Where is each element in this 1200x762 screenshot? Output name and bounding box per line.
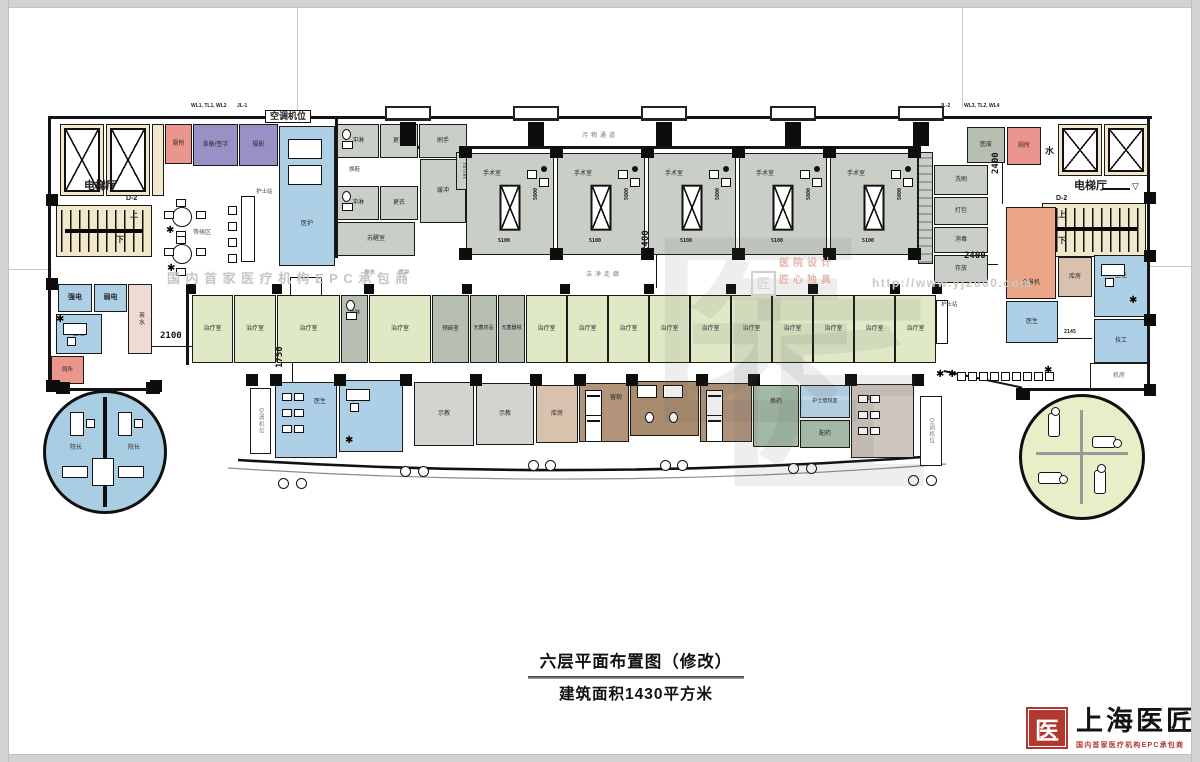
furniture-box bbox=[92, 458, 114, 486]
dental-chair-icon bbox=[1048, 413, 1060, 437]
plan-label: 等候区 bbox=[193, 230, 211, 236]
table-icon bbox=[288, 165, 322, 185]
room: 预麻室 bbox=[432, 295, 469, 363]
dimension-label: 5800 bbox=[716, 188, 721, 200]
room: 厕所 bbox=[1007, 127, 1041, 165]
chair-icon bbox=[164, 248, 174, 256]
furniture-box bbox=[1023, 372, 1032, 381]
operating-table-icon bbox=[773, 185, 794, 231]
column bbox=[1144, 384, 1156, 396]
column bbox=[56, 382, 70, 394]
wall bbox=[150, 346, 192, 347]
plan-label: 院长 bbox=[128, 445, 140, 451]
furniture-box bbox=[228, 238, 237, 247]
plant-icon: ✱ bbox=[1129, 296, 1137, 306]
furniture-box bbox=[1012, 372, 1021, 381]
room-label: 示教 bbox=[415, 383, 473, 445]
room-label: 治疗室 bbox=[609, 296, 648, 362]
furniture-box bbox=[957, 372, 966, 381]
room-label: 治疗室 bbox=[568, 296, 607, 362]
dental-chair-icon bbox=[1094, 470, 1106, 494]
chair-icon bbox=[294, 425, 304, 433]
column bbox=[785, 122, 801, 146]
chair-icon bbox=[294, 409, 304, 417]
chair-icon bbox=[196, 248, 206, 256]
room: 无菌药品 bbox=[470, 295, 497, 363]
toilet-icon bbox=[645, 412, 654, 423]
equipment-icon bbox=[618, 170, 628, 179]
room-label: 摄影 bbox=[240, 125, 277, 165]
room-label: 手术室 bbox=[631, 124, 717, 224]
toilet-icon bbox=[342, 191, 351, 202]
plan-label: 更衣 bbox=[364, 271, 375, 277]
dimension-label: 5800 bbox=[898, 188, 903, 200]
equipment-icon bbox=[903, 178, 913, 187]
room: 冲淋 bbox=[341, 295, 368, 363]
balcony-column bbox=[278, 478, 289, 489]
column bbox=[574, 374, 586, 386]
dimension-label: 2100 bbox=[160, 332, 182, 341]
room bbox=[1058, 124, 1102, 176]
building-area-label: 建筑面积1430平方米 bbox=[520, 682, 752, 704]
operating-table-icon bbox=[500, 185, 521, 231]
circle-room bbox=[43, 390, 167, 514]
room: 无菌器械 bbox=[498, 295, 525, 363]
column bbox=[400, 122, 416, 146]
column bbox=[1144, 314, 1156, 326]
room: 治疗室 bbox=[608, 295, 649, 363]
room-label: 医生 bbox=[1007, 302, 1057, 342]
column bbox=[462, 284, 472, 294]
equipment-icon bbox=[709, 170, 719, 179]
column bbox=[626, 374, 638, 386]
guide-line bbox=[297, 8, 298, 118]
canopy bbox=[385, 106, 431, 121]
column bbox=[641, 146, 654, 158]
canopy bbox=[770, 106, 816, 121]
dimension-label: 2145 bbox=[1064, 330, 1076, 335]
room-label: 示教 bbox=[477, 384, 533, 444]
furniture-box bbox=[118, 466, 144, 478]
column bbox=[908, 248, 921, 260]
room-label: 无菌器械 bbox=[499, 296, 524, 362]
title-block: 六层平面布置图（修改） 建筑面积1430平方米 bbox=[520, 648, 752, 704]
room-label: 主任 bbox=[1095, 246, 1147, 306]
toilet-icon bbox=[342, 129, 351, 140]
plant-icon: ✱ bbox=[345, 436, 353, 446]
wall bbox=[48, 116, 51, 391]
chair-icon bbox=[858, 395, 868, 403]
column bbox=[823, 248, 836, 260]
desk-icon bbox=[70, 412, 84, 436]
room: 冲淋 bbox=[337, 186, 379, 220]
plan-label: WL3, TL2, WL4 bbox=[964, 104, 1000, 109]
room-label: 厕所 bbox=[166, 125, 191, 163]
page-margin-right bbox=[1191, 0, 1200, 762]
room-label: 空调机位 bbox=[251, 389, 270, 453]
room-label: 洗刷 bbox=[935, 166, 987, 194]
desk-icon bbox=[1101, 264, 1125, 276]
operating-table-icon bbox=[864, 185, 885, 231]
room: 示教 bbox=[476, 383, 534, 445]
elevator-icon bbox=[1108, 128, 1144, 172]
plan-label: JL-2 bbox=[940, 104, 950, 109]
room-label: 治疗室 bbox=[650, 296, 689, 362]
chair-icon bbox=[282, 393, 292, 401]
column bbox=[912, 374, 924, 386]
chair-icon bbox=[164, 211, 174, 219]
chair-icon bbox=[176, 236, 186, 244]
column bbox=[334, 374, 346, 386]
room bbox=[1104, 124, 1148, 176]
plan-label: 下 bbox=[116, 236, 124, 244]
room: 治疗室 bbox=[567, 295, 608, 363]
page-margin-bottom bbox=[0, 754, 1200, 762]
balcony-column bbox=[926, 475, 937, 486]
room: 技工 bbox=[1094, 319, 1148, 363]
title-divider bbox=[528, 676, 744, 679]
canopy bbox=[513, 106, 559, 121]
desk-icon bbox=[118, 412, 132, 436]
room: 洗刷 bbox=[934, 165, 988, 195]
partition bbox=[1036, 452, 1128, 455]
plan-label: 护士站 bbox=[941, 303, 958, 309]
logo-text: 上海医匠 国内首家医疗机构EPC承包商 bbox=[1076, 707, 1196, 750]
room: 库房 bbox=[1058, 257, 1092, 297]
chair-icon bbox=[176, 268, 186, 276]
partition bbox=[1080, 410, 1083, 504]
drawing-title: 六层平面布置图（修改） bbox=[520, 648, 752, 672]
column bbox=[550, 248, 563, 260]
plant-icon: ✱ bbox=[948, 370, 956, 380]
room-label: 消毒 bbox=[935, 228, 987, 252]
room: 摄影 bbox=[239, 124, 278, 166]
chair-icon bbox=[870, 411, 880, 419]
room-label: 预麻室 bbox=[433, 296, 468, 362]
column bbox=[890, 284, 900, 294]
column bbox=[46, 278, 58, 290]
wall bbox=[48, 116, 1152, 119]
room-label: 手术室 bbox=[449, 124, 535, 224]
furniture-box bbox=[968, 372, 977, 381]
room-label: 强电 bbox=[59, 285, 91, 311]
room: 医护 bbox=[279, 126, 335, 266]
plan-label: D-2 bbox=[1056, 195, 1067, 202]
room: 更衣 bbox=[380, 186, 418, 220]
desk-chair-icon bbox=[350, 403, 359, 412]
plan-label: ▽ bbox=[1132, 182, 1139, 191]
room: 厕所 bbox=[165, 124, 192, 164]
column bbox=[550, 146, 563, 158]
balcony-column bbox=[908, 475, 919, 486]
plan-label: 缓冲 bbox=[398, 271, 409, 277]
floor-plan-canvas: 厕所准备/签字摄影医护冲淋更衣刷手冲淋更衣缓冲toilet苏醒室手术室手术室手术… bbox=[0, 0, 1200, 762]
dimension-label: 2400 bbox=[642, 230, 651, 252]
room-label: 弱电 bbox=[95, 285, 126, 311]
page-margin-top bbox=[0, 0, 1200, 8]
column bbox=[470, 374, 482, 386]
page-margin-left bbox=[0, 0, 9, 762]
dimension-label: 1750 bbox=[276, 346, 285, 368]
column bbox=[1144, 250, 1156, 262]
room-label: 治疗室 bbox=[732, 296, 771, 362]
column bbox=[823, 146, 836, 158]
column bbox=[696, 374, 708, 386]
room: 医生 bbox=[275, 382, 337, 458]
toilet-icon bbox=[669, 412, 678, 423]
bed-icon bbox=[706, 415, 723, 442]
sink-icon bbox=[346, 312, 357, 320]
balcony-arc-edge bbox=[228, 464, 946, 479]
dimension-label: 5800 bbox=[625, 188, 630, 200]
column bbox=[732, 146, 745, 158]
room-label: 库房 bbox=[1059, 258, 1091, 296]
room-label: 治疗室 bbox=[193, 296, 232, 362]
round-table-icon bbox=[172, 244, 192, 264]
plan-label: 空调机位 bbox=[265, 110, 311, 123]
room: 治疗室 bbox=[192, 295, 233, 363]
plan-label: 污物通道 bbox=[582, 133, 618, 139]
furniture-box bbox=[979, 372, 988, 381]
room: 强电 bbox=[58, 284, 92, 312]
sink-icon bbox=[342, 141, 353, 149]
chair-icon bbox=[858, 427, 868, 435]
column bbox=[46, 194, 58, 206]
room-label: 治疗室 bbox=[527, 296, 566, 362]
room: 治疗室 bbox=[854, 295, 895, 363]
dimension-label: 5100 bbox=[498, 239, 510, 244]
furniture-box bbox=[241, 196, 255, 262]
chair-icon bbox=[282, 409, 292, 417]
sink-icon bbox=[342, 203, 353, 211]
column bbox=[644, 284, 654, 294]
chair-icon bbox=[294, 393, 304, 401]
desk-chair-icon bbox=[67, 337, 76, 346]
room: 留观 bbox=[579, 383, 629, 442]
chair-icon bbox=[870, 395, 880, 403]
room: 治疗室 bbox=[772, 295, 813, 363]
room: 输液 bbox=[851, 384, 914, 458]
room-label: 茶水 bbox=[129, 285, 151, 353]
plan-label: 院长 bbox=[70, 445, 82, 451]
room-label: 治疗室 bbox=[896, 296, 935, 362]
column bbox=[560, 284, 570, 294]
balcony-column bbox=[806, 463, 817, 474]
balcony-column bbox=[296, 478, 307, 489]
dimension-label: 5100 bbox=[862, 239, 874, 244]
room: 治疗室 bbox=[277, 295, 340, 363]
cabinet-icon bbox=[663, 385, 683, 398]
column bbox=[726, 284, 736, 294]
balcony-column bbox=[545, 460, 556, 471]
room-label: 空调机位 bbox=[921, 397, 941, 465]
dimension-label: 2400 bbox=[964, 252, 986, 261]
dimension-label: 5100 bbox=[589, 239, 601, 244]
column bbox=[932, 284, 942, 294]
room: 主任 bbox=[1094, 255, 1148, 317]
column bbox=[1016, 388, 1030, 400]
logo-company-name: 上海医匠 bbox=[1076, 707, 1196, 737]
furniture-box bbox=[1001, 372, 1010, 381]
desk-chair-icon bbox=[134, 419, 143, 428]
column bbox=[272, 284, 282, 294]
room: 治疗室 bbox=[649, 295, 690, 363]
dimension-label: 5800 bbox=[807, 188, 812, 200]
room-label: 治疗室 bbox=[235, 296, 275, 362]
column bbox=[1144, 192, 1156, 204]
guide-line bbox=[1150, 266, 1192, 267]
plan-label: D-2 bbox=[126, 195, 137, 202]
room: 冲淋 bbox=[337, 124, 379, 158]
room: 弱电 bbox=[94, 284, 127, 312]
chair-icon bbox=[176, 199, 186, 207]
room: 治疗室 bbox=[731, 295, 772, 363]
plan-label: WL1, TL1, WL2 bbox=[191, 104, 227, 109]
room-label: 库房 bbox=[537, 386, 577, 442]
dental-chair-icon bbox=[1038, 472, 1062, 484]
equipment-icon bbox=[891, 170, 901, 179]
room-label: 换药 bbox=[754, 372, 798, 432]
equipment-icon bbox=[527, 170, 537, 179]
plan-label: 电梯厅 bbox=[84, 181, 117, 192]
elevator-icon bbox=[1062, 128, 1098, 172]
balcony-column bbox=[788, 463, 799, 474]
room: 换药 bbox=[753, 385, 799, 447]
column bbox=[913, 122, 929, 146]
desk-chair-icon bbox=[86, 419, 95, 428]
column bbox=[908, 146, 921, 158]
room-label: 准备/签字 bbox=[194, 125, 237, 165]
chair-icon bbox=[196, 211, 206, 219]
dimension-label: 5100 bbox=[680, 239, 692, 244]
room: 机房 bbox=[1090, 363, 1148, 389]
furniture-box bbox=[228, 254, 237, 263]
guide-line bbox=[962, 8, 963, 108]
plant-icon: ✱ bbox=[166, 226, 174, 236]
furniture-box bbox=[62, 466, 88, 478]
plan-label: 上 bbox=[130, 211, 138, 219]
room-label: 更衣 bbox=[381, 187, 417, 219]
bed-icon bbox=[585, 390, 602, 417]
column bbox=[400, 374, 412, 386]
plan-label: 下 bbox=[1058, 237, 1066, 245]
plan-label: 换鞋 bbox=[349, 168, 360, 174]
stairs-rail-icon bbox=[65, 229, 144, 233]
column bbox=[146, 382, 160, 394]
plan-label: 上 bbox=[1058, 211, 1066, 219]
pod-divider-wall bbox=[103, 397, 107, 508]
company-logo: 医 上海医匠 国内首家医疗机构EPC承包商 bbox=[1026, 707, 1196, 750]
balcony-column bbox=[677, 460, 688, 471]
room-label: 机房 bbox=[1091, 364, 1147, 388]
balcony-column bbox=[400, 466, 411, 477]
dimension-label: 5100 bbox=[771, 239, 783, 244]
room-label: 治疗室 bbox=[691, 296, 730, 362]
room: 准备/签字 bbox=[193, 124, 238, 166]
room-label: 治疗室 bbox=[773, 296, 812, 362]
furniture-box bbox=[228, 222, 237, 231]
guide-line bbox=[8, 269, 52, 270]
stairs-rail-icon bbox=[1051, 227, 1137, 231]
balcony-column bbox=[660, 460, 671, 471]
round-table-icon bbox=[172, 207, 192, 227]
room-label: 治疗室 bbox=[855, 296, 894, 362]
room-label: 治疗室 bbox=[370, 296, 430, 362]
plan-label: 护士站 bbox=[256, 190, 273, 196]
logo-tagline: 国内首家医疗机构EPC承包商 bbox=[1076, 740, 1196, 750]
room: 消毒 bbox=[934, 227, 988, 253]
equipment-dot-icon bbox=[905, 166, 911, 172]
chair-icon bbox=[282, 425, 292, 433]
room: 留观 bbox=[700, 383, 752, 442]
column bbox=[732, 248, 745, 260]
desk-chair-icon bbox=[1105, 278, 1114, 287]
room: 治疗室 bbox=[369, 295, 431, 363]
column bbox=[528, 122, 544, 146]
column bbox=[186, 284, 196, 294]
room: 茶水 bbox=[128, 284, 152, 354]
room: 治疗室 bbox=[234, 295, 276, 363]
logo-seal-icon: 医 bbox=[1026, 707, 1068, 749]
balcony-column bbox=[528, 460, 539, 471]
column bbox=[845, 374, 857, 386]
toilet-icon bbox=[346, 300, 355, 311]
column bbox=[270, 374, 282, 386]
furniture-box bbox=[1034, 372, 1043, 381]
column bbox=[459, 248, 472, 260]
chair-icon bbox=[870, 427, 880, 435]
wall bbox=[186, 291, 189, 365]
room bbox=[152, 124, 164, 196]
wall bbox=[1056, 338, 1092, 339]
room-label: 苏醒室 bbox=[338, 223, 414, 255]
table-icon bbox=[288, 139, 322, 159]
room-label: 手术室 bbox=[813, 124, 899, 224]
canopy bbox=[898, 106, 944, 121]
dimension-label: 2400 bbox=[992, 152, 1001, 174]
room-label: 治疗室 bbox=[814, 296, 853, 362]
plan-label: 水 bbox=[1045, 147, 1054, 156]
plant-icon: ✱ bbox=[167, 264, 175, 274]
room-label: 打包 bbox=[935, 198, 987, 224]
room-label: 技工 bbox=[1095, 320, 1147, 362]
plant-icon: ✱ bbox=[56, 315, 64, 325]
room: 全景机 bbox=[1006, 207, 1056, 299]
column bbox=[748, 374, 760, 386]
room: 苏醒室 bbox=[337, 222, 415, 256]
plan-label: JL-1 bbox=[237, 104, 247, 109]
room: 治疗室 bbox=[813, 295, 854, 363]
balcony-arc-outer bbox=[238, 456, 936, 470]
plan-label: 电梯厅 bbox=[1074, 181, 1107, 192]
operating-table-icon bbox=[682, 185, 703, 231]
room: 空调机位 bbox=[250, 388, 271, 454]
equipment-icon bbox=[800, 170, 810, 179]
furniture-box bbox=[990, 372, 999, 381]
room-label: 手术室 bbox=[540, 124, 626, 224]
dental-chair-icon bbox=[1092, 436, 1116, 448]
column bbox=[364, 284, 374, 294]
room-label: 治疗室 bbox=[278, 296, 339, 362]
desk-icon bbox=[63, 323, 87, 335]
room: 治疗室 bbox=[690, 295, 731, 363]
cabinet-icon bbox=[637, 385, 657, 398]
room: 示教 bbox=[414, 382, 474, 446]
room: 打包 bbox=[934, 197, 988, 225]
balcony-column bbox=[418, 466, 429, 477]
plant-icon: ✱ bbox=[1044, 366, 1052, 376]
plan-label: 洁净走廊 bbox=[586, 272, 622, 278]
